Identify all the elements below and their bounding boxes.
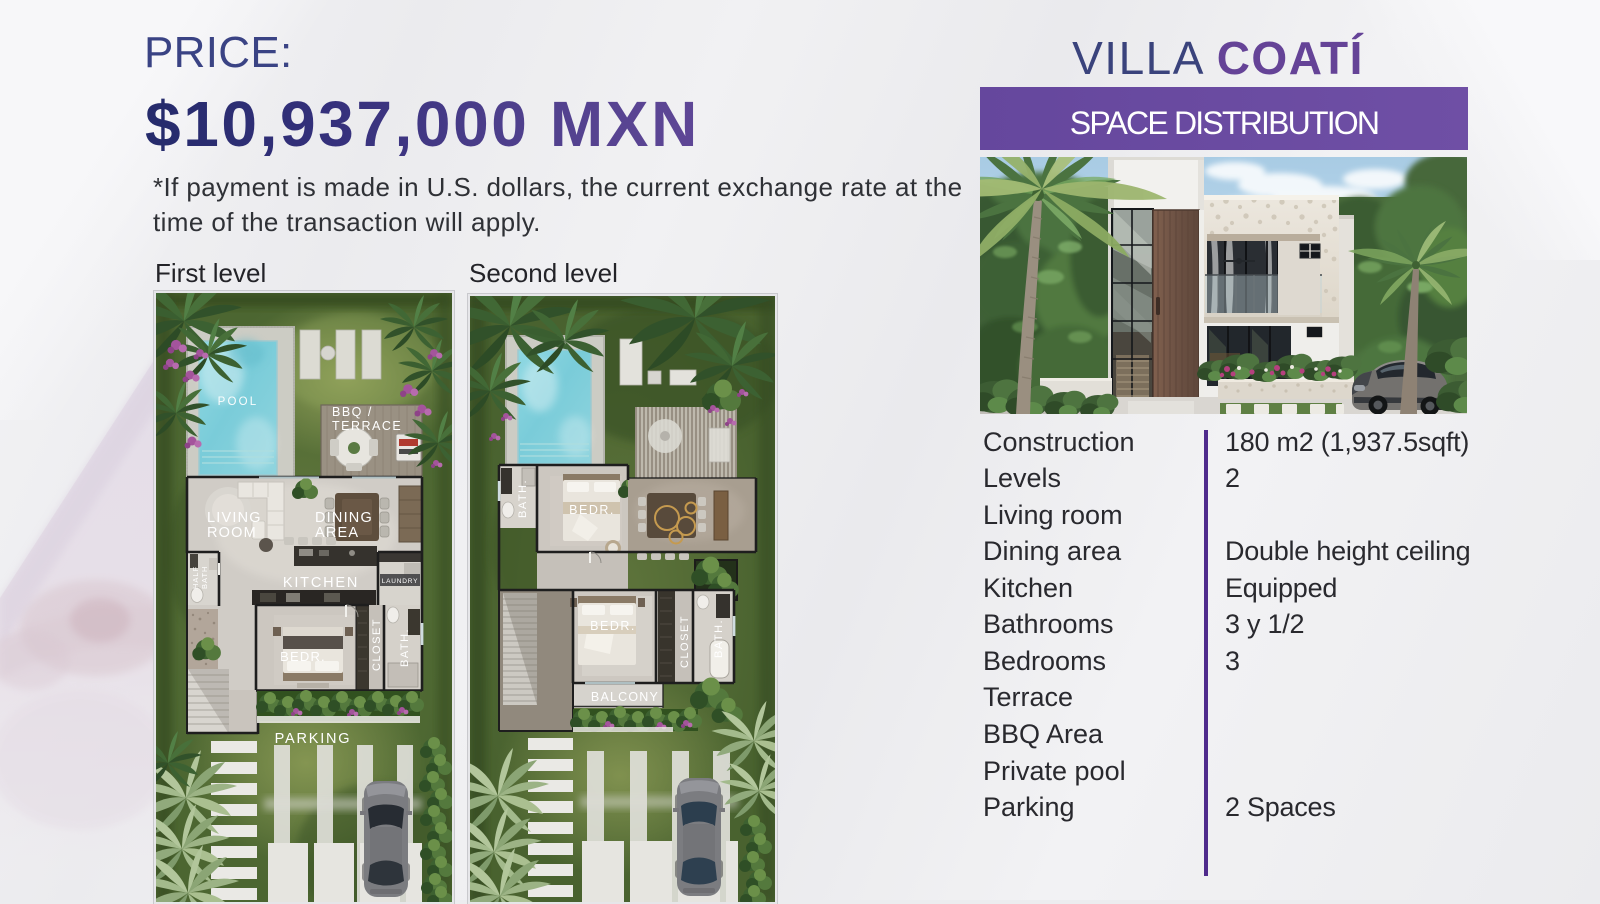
svg-text:BALCONY: BALCONY	[591, 690, 659, 704]
svg-text:TERRACE: TERRACE	[332, 419, 402, 433]
svg-text:KITCHEN: KITCHEN	[283, 575, 359, 591]
svg-text:BEDR.: BEDR.	[569, 503, 615, 517]
svg-text:BATH: BATH	[200, 566, 209, 589]
svg-text:BATH.: BATH.	[517, 479, 529, 518]
svg-text:BATH.: BATH.	[713, 619, 725, 658]
svg-text:BEDR.: BEDR.	[590, 619, 636, 633]
svg-text:LIVING: LIVING	[207, 510, 262, 526]
svg-text:ROOM: ROOM	[207, 525, 257, 541]
svg-text:BBQ /: BBQ /	[332, 405, 373, 419]
svg-text:CLOSET: CLOSET	[679, 615, 691, 668]
svg-text:CLOSET: CLOSET	[371, 618, 383, 671]
svg-text:PARKING: PARKING	[275, 731, 352, 747]
svg-text:BATH.: BATH.	[399, 628, 411, 667]
svg-text:POOL: POOL	[218, 396, 259, 408]
svg-text:LAUNDRY: LAUNDRY	[382, 578, 419, 585]
svg-text:BEDR.: BEDR.	[280, 649, 326, 664]
svg-text:HALF: HALF	[191, 566, 200, 589]
svg-text:DINING: DINING	[315, 510, 373, 526]
